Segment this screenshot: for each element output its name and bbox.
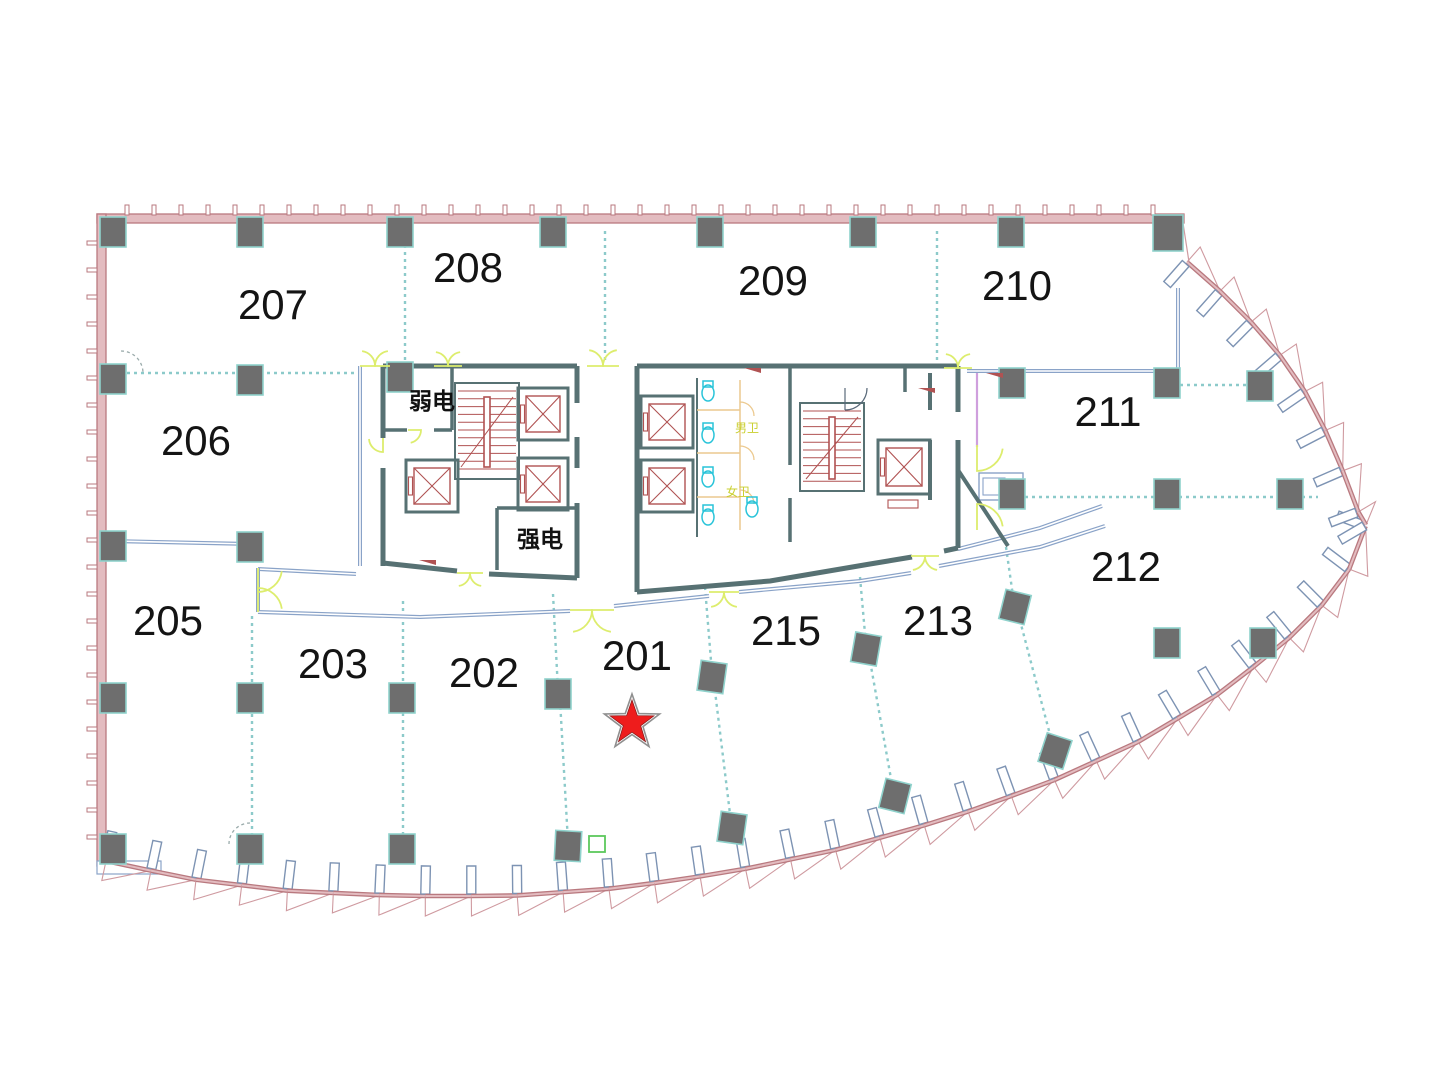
room-number-label-207: 207 [238,281,308,328]
column [545,679,571,709]
room-number-label-209: 209 [738,257,808,304]
facade-wall-segment-core [1343,471,1359,512]
column [540,217,566,247]
window-mullion-tick [179,205,183,215]
core-wall [637,557,912,592]
window-mullion-tick [1124,205,1128,215]
facade-fin [955,782,972,812]
facade-fin [512,865,521,893]
window-mullion-tick [87,646,97,650]
facade-fin [825,820,840,849]
facade-wall-segment-core [1325,430,1342,470]
window-mullion-tick [87,484,97,488]
column [850,217,876,247]
facade-wall-segment-core [1305,392,1325,431]
elevator-door-bar [521,405,525,423]
column [717,811,747,844]
room-labels: 207208209210206211212205203202201215213弱… [133,244,1161,696]
column [237,834,263,864]
floor-plan-canvas: 207208209210206211212205203202201215213弱… [0,0,1440,1080]
column [1154,368,1180,398]
partition-line [869,655,893,790]
fire-hose-symbol [744,368,761,373]
facade-wall-segment-core [880,825,924,837]
elevator-door-bar [521,475,525,493]
column [237,365,263,395]
window-mullion-tick [87,268,97,272]
facade-wall-segment-core [1217,667,1253,695]
corridor-walls [112,288,1178,617]
facade-fin [868,808,884,837]
utility-room-label: 强电 [517,526,563,552]
window-mullion-tick [87,781,97,785]
column [554,830,582,861]
window-mullion-tick [87,295,97,299]
window-mullion-tick [368,205,372,215]
column [1154,628,1180,658]
window-mullion-tick [87,322,97,326]
fire-hose-symbol [986,373,1003,378]
window-mullion-tick [87,376,97,380]
column [100,217,126,247]
green-highlight-square [589,836,605,852]
column [1154,479,1180,509]
column [100,364,126,394]
facade-fin [1227,320,1253,346]
corridor-north-wall [958,506,1102,549]
facade-wall-segment-core [1178,695,1217,719]
room-number-label-215: 215 [751,607,821,654]
room-number-label-213: 213 [903,597,973,644]
window-mullion-tick [206,205,210,215]
toilet-room-label: 男卫 [735,421,759,435]
elevator-door-bar [644,413,648,431]
door-swing [587,350,603,366]
window-mullion-tick [530,205,534,215]
window-mullion-tick [1016,205,1020,215]
window-mullion-tick [1151,205,1155,215]
facade-wall-segment-core [151,871,196,880]
window-mullion-tick [665,205,669,215]
service-cores [383,366,1008,592]
room-number-label-203: 203 [298,640,368,687]
door-swings [258,350,1003,632]
window-mullion-tick [827,205,831,215]
elevator-door-bar [644,477,648,495]
window-mullion-tick [584,205,588,215]
facade-wall-segment-core [1187,262,1220,291]
window-mullion-tick [962,205,966,215]
window-mullion-tick [152,205,156,215]
facade-fin [1198,667,1220,696]
facade-fin [1313,467,1342,486]
window-mullion-tick [1070,205,1074,215]
window-mullion-tick [87,808,97,812]
facade-bay-outline [1343,464,1362,512]
window-mullion-tick [503,205,507,215]
facade-fin [467,866,476,894]
door-swing [911,556,925,570]
elevator-door-bar [409,477,413,495]
facade-fin [1080,732,1100,761]
door-swing [977,445,1003,471]
column [387,217,413,247]
column [999,589,1031,624]
window-mullion-tick [87,457,97,461]
column [389,834,415,864]
column [1153,215,1183,251]
room-number-label-210: 210 [982,262,1052,309]
core-wall [383,563,457,571]
window-mullion-tick [260,205,264,215]
door-swing [408,430,421,443]
facade-bay-outline [425,896,471,916]
column [1247,371,1273,401]
window-mullion-tick [87,700,97,704]
partition-line [560,700,568,842]
utility-room-label: 弱电 [409,388,455,414]
window-mullion-tick [87,403,97,407]
facade-bay-outline [968,796,1011,830]
window-mullion-tick [557,205,561,215]
facade-fin [192,849,206,878]
facade-fin [375,865,385,893]
column [697,217,723,247]
window-mullion-tick [87,511,97,515]
facade-fin [329,863,339,891]
facade-fin [1159,690,1181,719]
facade-fin [602,859,613,888]
column [851,632,882,666]
door-swing [592,610,614,632]
window-mullion-tick [611,205,615,215]
window-mullion-tick [449,205,453,215]
elevator-counterweight [888,500,918,508]
partition-line [553,594,558,690]
door-swing [709,592,724,607]
facade-wall-segment-core [1011,780,1054,796]
column [1250,628,1276,658]
window-mullion-tick [87,565,97,569]
window-mullion-tick [638,205,642,215]
window-mullion-tick [719,205,723,215]
column [998,217,1024,247]
room-number-label-206: 206 [161,417,231,464]
column [697,660,727,693]
column [237,683,263,713]
facade-fin [557,862,568,891]
window-mullion-tick [395,205,399,215]
facade-wall-segment-core [1138,718,1178,741]
door-swing [724,592,739,607]
door-swing [360,351,375,366]
window-mullion-tick [287,205,291,215]
door-swing [470,573,483,586]
room-number-label-211: 211 [1075,388,1142,435]
door-swing [958,354,972,368]
window-mullion-tick [1043,205,1047,215]
facade-wall-segment-core [1096,742,1138,761]
room-number-label-202: 202 [449,649,519,696]
window-mullion-tick [87,619,97,623]
window-mullion-tick [773,205,777,215]
toilet-stall-door-arc [740,446,754,460]
window-mullion-tick [476,205,480,215]
core-wall [944,548,958,551]
window-mullion-tick [854,205,858,215]
facade-fin [646,853,659,882]
core-wall [489,574,577,578]
window-mullion-tick [87,430,97,434]
column [999,479,1025,509]
partition-line [705,587,712,673]
window-mullion-tick [87,349,97,353]
facade-fin [1323,547,1351,571]
window-mullion-tick [692,205,696,215]
column [389,683,415,713]
fire-hose-symbol [419,560,436,565]
toilet-room-label: 女卫 [726,484,750,499]
window-mullion-tick [422,205,426,215]
floor-plan-page: 207208209210206211212205203202201215213弱… [0,0,1440,1080]
fire-hose-symbol [918,388,935,393]
facade-bay-outline [471,896,517,917]
facade-fin [1297,581,1323,607]
corridor-south-wall-core [614,596,709,606]
window-mullion-tick [908,205,912,215]
window-mullion-tick [233,205,237,215]
facade-fin [912,795,928,824]
facade-fin [1278,389,1306,412]
window-mullion-tick [341,205,345,215]
facade-wall-segment-core [924,812,968,826]
facade-wall-segment-core [968,796,1011,812]
facade-corner-link [1183,223,1189,262]
column [100,834,126,864]
column [879,778,911,813]
window-mullion-tick [87,727,97,731]
facade-fin [997,766,1015,795]
window-mullion-tick [1097,205,1101,215]
window-mullion-tick [935,205,939,215]
facade-fin [691,846,704,875]
door-swing [369,438,383,452]
window-mullion-tick [87,241,97,245]
column [237,217,263,247]
facade-wall-segment-core [471,895,517,896]
column [1277,479,1303,509]
facade-fin [421,866,431,894]
window-mullion-tick [87,538,97,542]
room-number-label-205: 205 [133,597,203,644]
window-mullion-tick [87,673,97,677]
facade-fin [1164,261,1189,288]
window-mullion-tick [800,205,804,215]
window-mullion-tick [881,205,885,215]
door-swing [457,573,470,586]
facade-fin [780,829,795,858]
facade-fin [1197,290,1222,317]
facade-wall-segment-core [379,895,425,896]
facade-bay-outline [1011,780,1054,815]
window-mullion-tick [87,754,97,758]
facade-fin [1122,713,1142,742]
column [100,531,126,561]
door-swing [570,610,592,632]
room-number-label-201: 201 [602,632,672,679]
window-mullion-tick [746,205,750,215]
facade-wall-segment-core [1251,322,1280,355]
facade-fin [283,860,295,889]
window-mullion-tick [314,205,318,215]
facade-wall-segment-core [1289,605,1321,637]
door-swing [925,556,939,570]
window-mullion-tick [87,835,97,839]
window-mullion-tick [125,205,129,215]
window-mullion-tick [989,205,993,215]
room-number-label-212: 212 [1091,543,1161,590]
column [999,368,1025,398]
column [100,683,126,713]
room-number-label-208: 208 [433,244,503,291]
partition-line [1018,613,1053,746]
toilet-stall-door-arc [740,402,754,416]
facade-wall-segment-core [700,869,745,877]
facade-wall-segment-core [1220,291,1251,322]
window-mullion-tick [87,592,97,596]
partition-line [714,683,731,822]
column [237,532,263,562]
facade-fin [1297,427,1326,448]
elevator-door-bar [881,458,885,476]
